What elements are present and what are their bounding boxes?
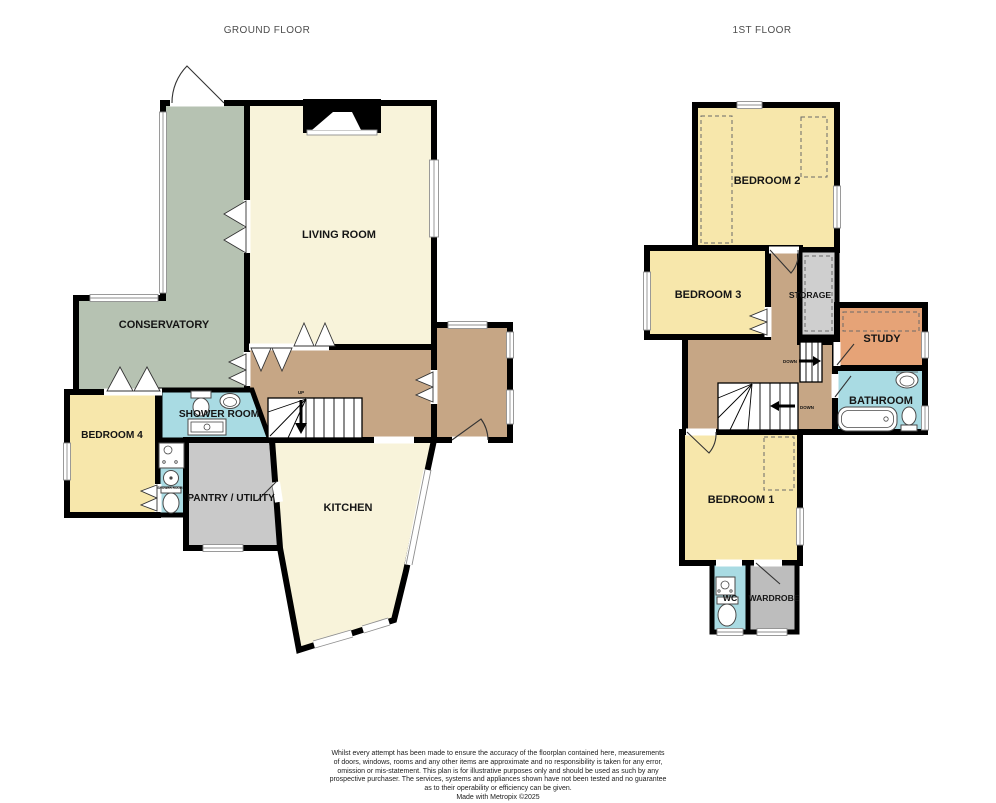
label-bedroom-4: BEDROOM 4 bbox=[81, 430, 143, 441]
floorplan-svg: LIVING ROOM CONSERVATORY BEDROOM 4 SHOWE… bbox=[0, 0, 996, 800]
label-storage: STORAGE bbox=[789, 290, 832, 300]
label-bedroom-2: BEDROOM 2 bbox=[734, 175, 801, 187]
label-shower-room: SHOWER ROOM bbox=[179, 409, 259, 420]
label-bedroom-3: BEDROOM 3 bbox=[675, 289, 742, 301]
toilet-icon bbox=[902, 407, 916, 425]
label-pantry-utility: PANTRY / UTILITY bbox=[187, 493, 275, 504]
window bbox=[448, 322, 487, 329]
window bbox=[90, 295, 158, 302]
disclaimer-line: as to their operability or efficiency ca… bbox=[0, 785, 996, 794]
window bbox=[797, 508, 804, 545]
window bbox=[64, 443, 71, 480]
toilet-icon bbox=[191, 391, 211, 398]
window bbox=[922, 406, 929, 430]
label-kitchen: KITCHEN bbox=[324, 502, 373, 514]
sink-unit-icon bbox=[159, 443, 184, 468]
window bbox=[834, 186, 841, 228]
label-bedroom-1: BEDROOM 1 bbox=[708, 494, 775, 506]
room-entrance bbox=[434, 325, 510, 440]
label-study: STUDY bbox=[863, 333, 901, 345]
label-wc: WC bbox=[723, 593, 737, 603]
fireplace bbox=[303, 99, 381, 135]
window bbox=[507, 332, 514, 358]
label-conservatory: CONSERVATORY bbox=[119, 319, 210, 331]
room-bedroom-4 bbox=[67, 392, 158, 515]
disclaimer-line: omission or mis-statement. This plan is … bbox=[0, 768, 996, 777]
window bbox=[644, 272, 651, 330]
first-floor-title: 1ST FLOOR bbox=[733, 25, 792, 36]
disclaimer-line: prospective purchaser. The services, sys… bbox=[0, 776, 996, 785]
room-living-room bbox=[247, 103, 434, 347]
window bbox=[160, 112, 167, 293]
label-wardrobe: WARDROBE bbox=[748, 593, 799, 603]
door-wc bbox=[716, 560, 742, 567]
label-stairs-down-upper: DOWN bbox=[783, 359, 797, 364]
floorplan-page: { "header": { "ground_floor_title": "GRO… bbox=[0, 0, 996, 800]
label-stairs-up: UP bbox=[298, 390, 304, 395]
label-living-room: LIVING ROOM bbox=[302, 229, 376, 241]
label-bathroom: BATHROOM bbox=[849, 395, 913, 407]
disclaimer-line: of doors, windows, rooms and any other i… bbox=[0, 759, 996, 768]
window bbox=[717, 629, 743, 636]
stairs-ground bbox=[268, 398, 362, 438]
door-conservatory-exterior bbox=[170, 66, 224, 107]
ground-floor-title: GROUND FLOOR bbox=[224, 25, 310, 36]
stairs-first-main bbox=[718, 383, 798, 430]
label-ensuite-tiny: SHOWER ROOM bbox=[157, 486, 182, 490]
label-stairs-down-lower: DOWN bbox=[800, 405, 814, 410]
door-hall-kitchen bbox=[374, 437, 414, 444]
ground-floor-plan: LIVING ROOM CONSERVATORY BEDROOM 4 SHOWE… bbox=[64, 66, 514, 650]
stairs-first-upper bbox=[799, 342, 822, 382]
window bbox=[922, 332, 929, 358]
window bbox=[430, 160, 439, 237]
window bbox=[737, 102, 762, 109]
window bbox=[757, 629, 787, 636]
first-floor-plan: BEDROOM 2 BEDROOM 3 STORAGE STUDY BATHRO… bbox=[644, 102, 929, 636]
window bbox=[203, 545, 243, 552]
vanity-icon bbox=[188, 419, 226, 435]
disclaimer-line: Whilst every attempt has been made to en… bbox=[0, 750, 996, 759]
window bbox=[507, 390, 514, 424]
disclaimer: Whilst every attempt has been made to en… bbox=[0, 750, 996, 803]
credit-line: Made with Metropix ©2025 bbox=[0, 794, 996, 803]
